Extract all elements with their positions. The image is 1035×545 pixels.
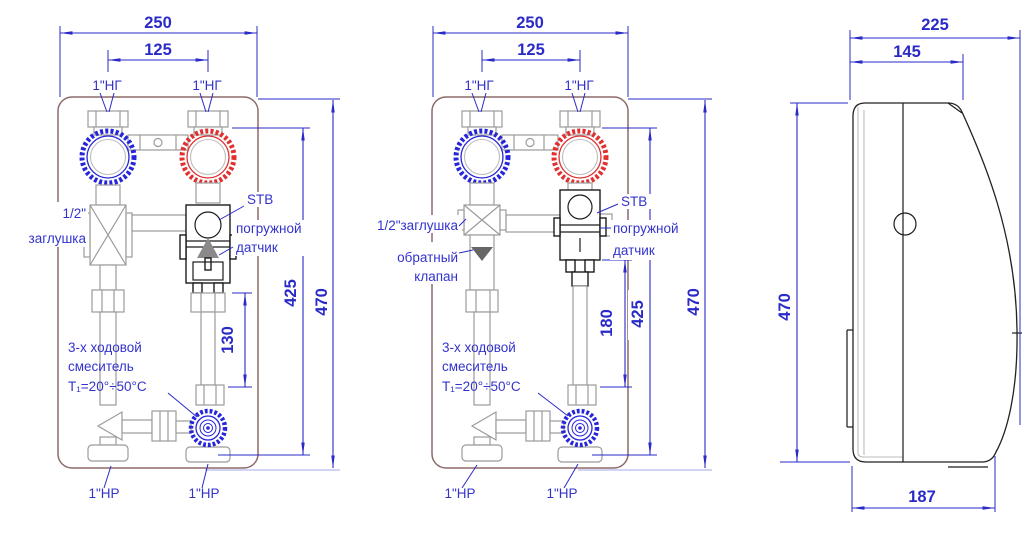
sensor-label-line1: погружной <box>236 221 302 236</box>
dim-inner-label: 425 <box>629 300 647 328</box>
port-bottom-left-label: 1"НР <box>444 486 475 501</box>
crossover-pipe <box>132 215 186 231</box>
dim-width-label: 250 <box>144 14 172 32</box>
mixer-label-line3: T₁=20°÷50°C <box>442 379 521 394</box>
dim-width-label: 250 <box>516 14 544 32</box>
view-front-open: 250 125 1"НГ 1"НГ 470 425 130 1/2" заглу… <box>12 14 340 501</box>
technical-drawing-canvas: 250 125 1"НГ 1"НГ 470 425 130 1/2" заглу… <box>0 0 1035 545</box>
sensor-label-line2: датчик <box>613 243 655 258</box>
outlet-flange-left <box>88 445 128 461</box>
stb-label: STB <box>621 194 647 209</box>
mixer-label-line1: 3-х ходовой <box>68 340 142 355</box>
shell-outline <box>853 103 1017 462</box>
mixer-label-line1: 3-х ходовой <box>442 340 516 355</box>
mixer-label-line2: смеситель <box>68 359 134 374</box>
port-top-left-label: 1"НГ <box>464 78 494 93</box>
dim-spacing-label: 125 <box>517 41 545 59</box>
view-front-check: 250 125 1"НГ 1"НГ 470 425 180 1/2"заглуш… <box>350 14 712 501</box>
dim-inner-label: 425 <box>282 279 300 307</box>
check-valve-label-line2: клапан <box>414 269 458 284</box>
plug-label: 1/2"заглушка <box>377 218 459 233</box>
check-valve-label-line1: обратный <box>397 250 458 265</box>
dim-gap-label: 180 <box>598 309 616 337</box>
sensor-label-line2: датчик <box>236 240 278 255</box>
dim-depth-label: 225 <box>921 16 949 34</box>
port-bottom-right-label: 1"НР <box>546 486 577 501</box>
plug-label-line1: 1/2" <box>62 206 86 221</box>
port-bottom-right-label: 1"НР <box>188 486 219 501</box>
pump-group-drawing: 250 125 1"НГ 1"НГ 470 425 130 1/2" заглу… <box>0 0 1035 545</box>
port-top-right-label: 1"НГ <box>564 78 594 93</box>
sensor-label-line1: погружной <box>613 221 679 236</box>
dim-base-label: 187 <box>908 488 936 506</box>
dim-gap-label: 130 <box>219 326 237 354</box>
dim-height-label: 470 <box>313 288 331 316</box>
plug-label-line2: заглушка <box>29 231 87 246</box>
dim-width-250 <box>60 26 257 97</box>
crossover-pipe <box>506 215 560 232</box>
dim-spacing-label: 125 <box>144 41 172 59</box>
outlet-flange-left <box>462 445 502 461</box>
port-top-left-label: 1"НГ <box>92 78 122 93</box>
dim-body-label: 145 <box>893 43 921 61</box>
dim-height-label: 470 <box>685 288 703 316</box>
stb-label: STB <box>247 192 273 207</box>
wall-bracket <box>847 330 853 427</box>
mixer-label-line3: T₁=20°÷50°C <box>68 379 147 394</box>
stb-thermostat <box>180 205 236 293</box>
port-top-right-label: 1"НГ <box>192 78 222 93</box>
mixer-label-line2: смеситель <box>442 359 508 374</box>
view-side: 225 145 470 187 <box>775 16 1022 512</box>
dim-width-250 <box>433 26 628 97</box>
port-bottom-left-label: 1"НР <box>88 486 119 501</box>
plug-valve-body <box>84 205 132 265</box>
dim-height-470 <box>780 103 850 462</box>
dim-height-label: 470 <box>776 293 794 321</box>
